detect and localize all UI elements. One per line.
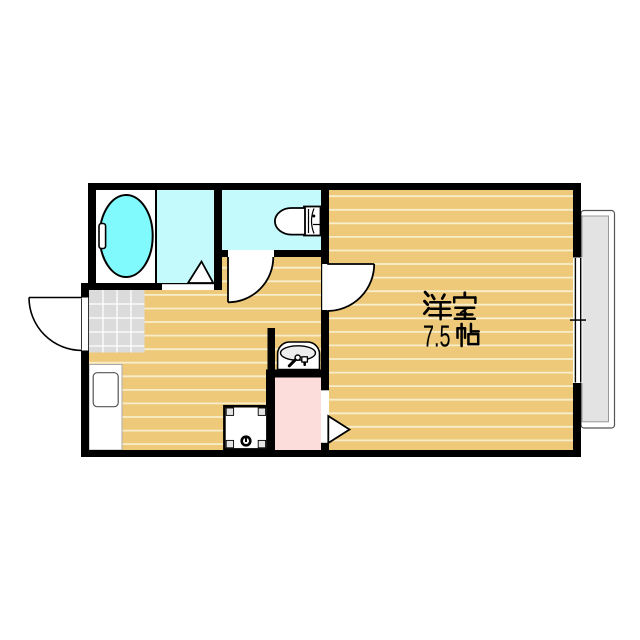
svg-text:7.5: 7.5 bbox=[423, 318, 451, 353]
